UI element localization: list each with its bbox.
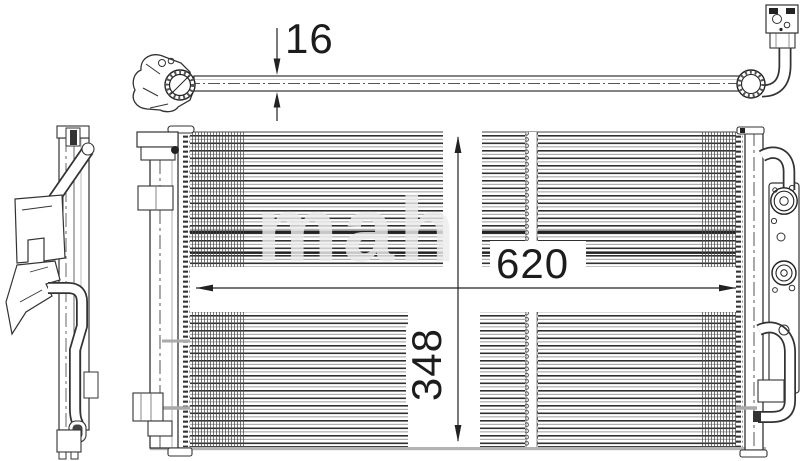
dimension-depth-label: 16 (283, 18, 336, 60)
top-view-manifold-block (766, 5, 798, 48)
front-view-bottom-edge (150, 447, 766, 450)
front-view (133, 126, 799, 457)
side-view-foot (57, 430, 81, 459)
dimension-width-label: 620 (494, 243, 571, 285)
top-view-left-port (165, 70, 195, 100)
side-view (6, 126, 98, 459)
watermark-text: mah (256, 184, 460, 276)
technical-drawing: mah 16 620 348 (0, 0, 800, 461)
top-view-bar (188, 76, 748, 91)
dimension-depth-arrows (274, 28, 281, 121)
top-view-right-port (737, 70, 765, 98)
top-view-right-connector (737, 5, 798, 98)
top-view-left-fitting (133, 55, 195, 112)
front-view-centre-seam (525, 132, 538, 447)
dimension-height-label: 348 (406, 326, 448, 403)
top-view (133, 5, 798, 121)
side-view-bracket (6, 195, 65, 334)
